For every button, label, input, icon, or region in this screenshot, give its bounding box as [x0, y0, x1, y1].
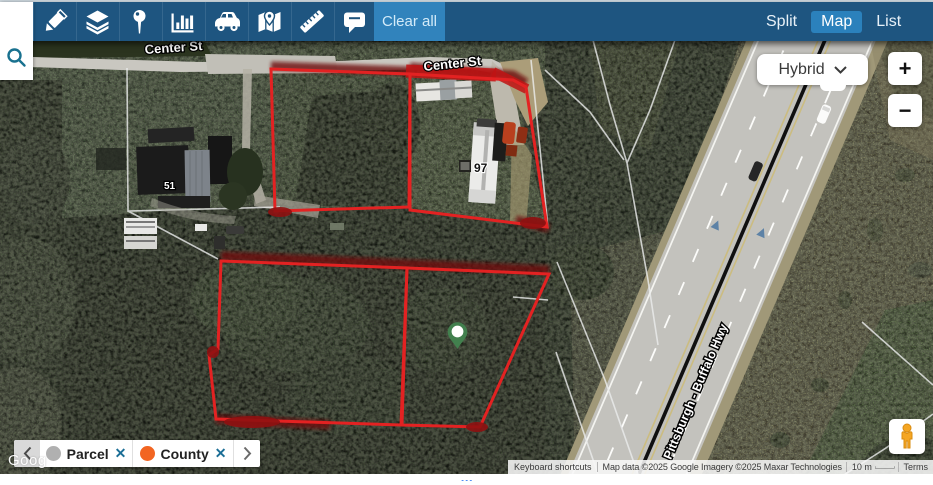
svg-text:51: 51 — [164, 181, 176, 192]
svg-text:97: 97 — [474, 161, 488, 175]
